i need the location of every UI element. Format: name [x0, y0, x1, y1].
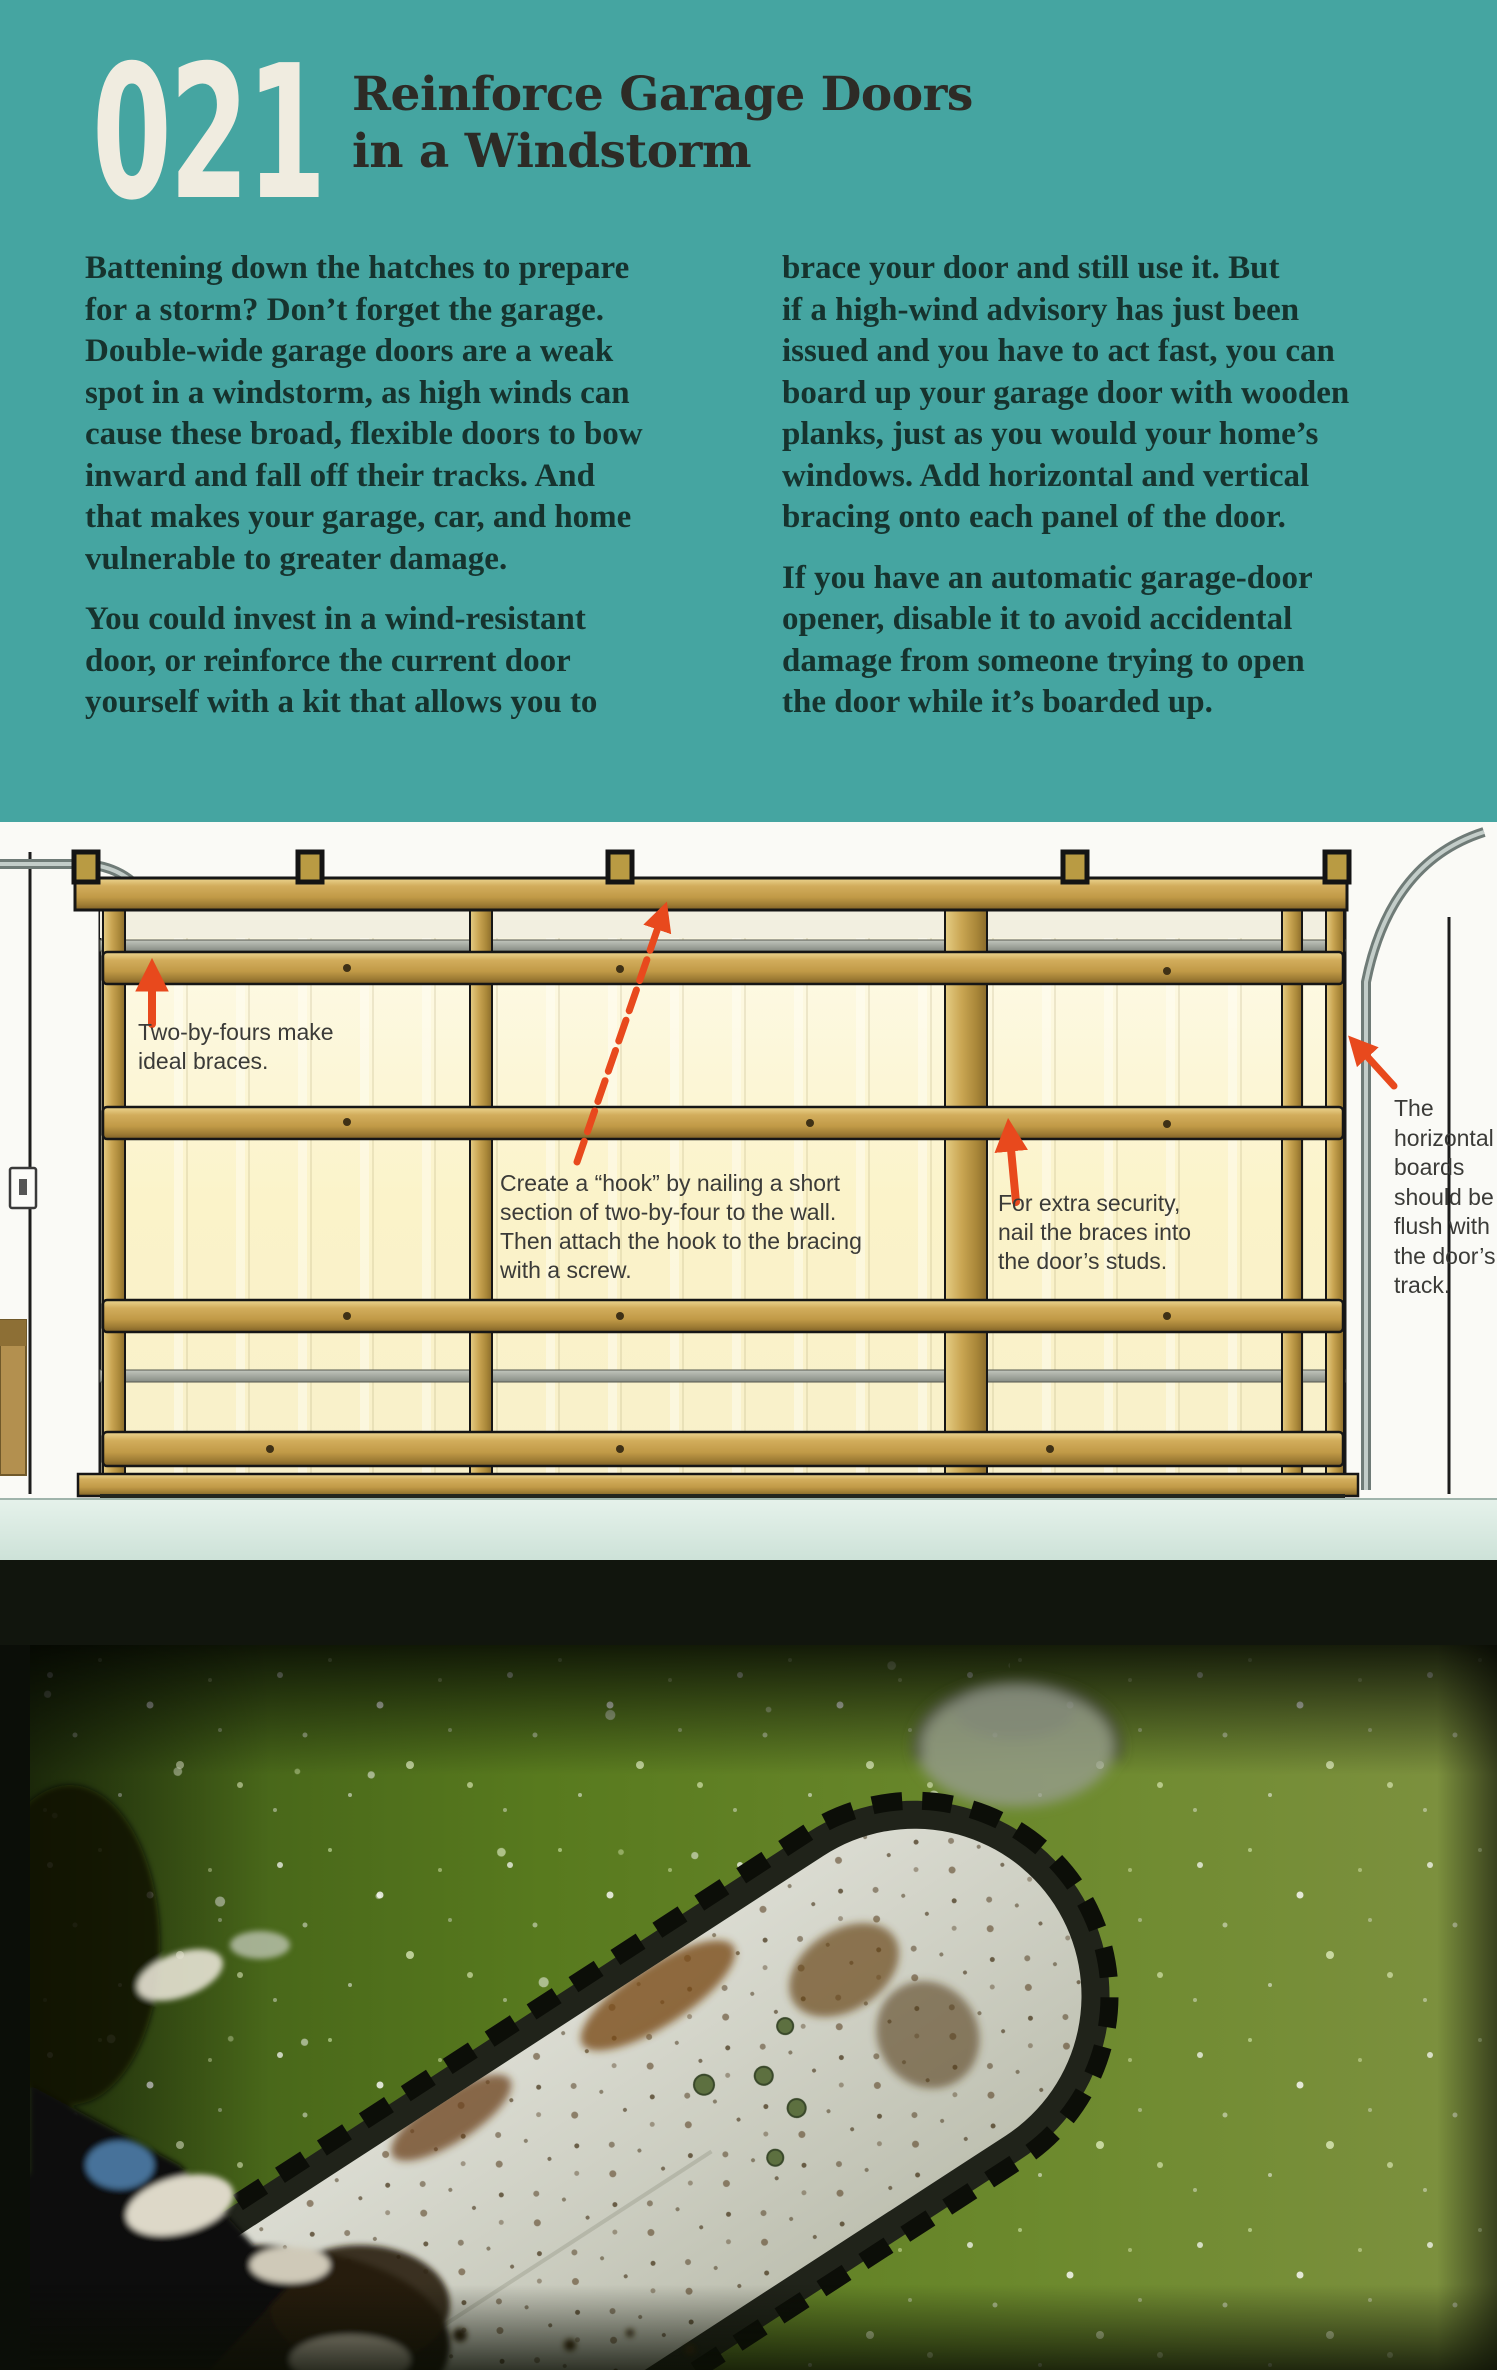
item-number: 021	[92, 58, 340, 208]
item-title: Reinforce Garage Doors in a Windstorm	[352, 66, 973, 180]
bottom-vignette	[30, 2285, 1497, 2370]
cardboard-box	[0, 1320, 26, 1475]
right-vignette	[1437, 1645, 1497, 2370]
body-column-left: Battening down the hatches to prepare fo…	[85, 248, 745, 743]
callout-studs: For extra security, nail the braces into…	[998, 1189, 1258, 1276]
bottom-rail	[78, 1474, 1358, 1496]
top-rail	[75, 878, 1347, 910]
paragraph: If you have an automatic garage-door ope…	[782, 558, 1442, 724]
chainsaw-photo	[0, 1645, 1497, 2370]
light-switch	[10, 1168, 36, 1208]
blue-debris-fleck	[86, 2141, 154, 2189]
garage-door-illustration: Two-by-fours make ideal braces. Create a…	[0, 822, 1497, 1560]
teal-header-section: 021 Reinforce Garage Doors in a Windstor…	[0, 0, 1497, 822]
book-page: 021 Reinforce Garage Doors in a Windstor…	[0, 0, 1497, 2370]
body-column-right: brace your door and still use it. But if…	[782, 248, 1442, 743]
paragraph: brace your door and still use it. But if…	[782, 248, 1442, 539]
callout-braces: Two-by-fours make ideal braces.	[138, 1018, 398, 1076]
callout-hook: Create a “hook” by nailing a short secti…	[500, 1169, 930, 1285]
photo-drawing	[30, 1645, 1497, 2370]
door-seam	[100, 940, 1345, 951]
paragraph: Battening down the hatches to prepare fo…	[85, 248, 745, 580]
door-seam	[100, 1370, 1345, 1382]
divider-band	[0, 1560, 1497, 1645]
callout-track: The horizontal boards should be flush wi…	[1394, 1094, 1497, 1301]
item-title-line1: Reinforce Garage Doors	[352, 66, 973, 123]
item-title-line2: in a Windstorm	[352, 123, 973, 180]
garage-floor	[0, 1498, 1497, 1560]
paragraph: You could invest in a wind-resistant doo…	[85, 599, 745, 724]
